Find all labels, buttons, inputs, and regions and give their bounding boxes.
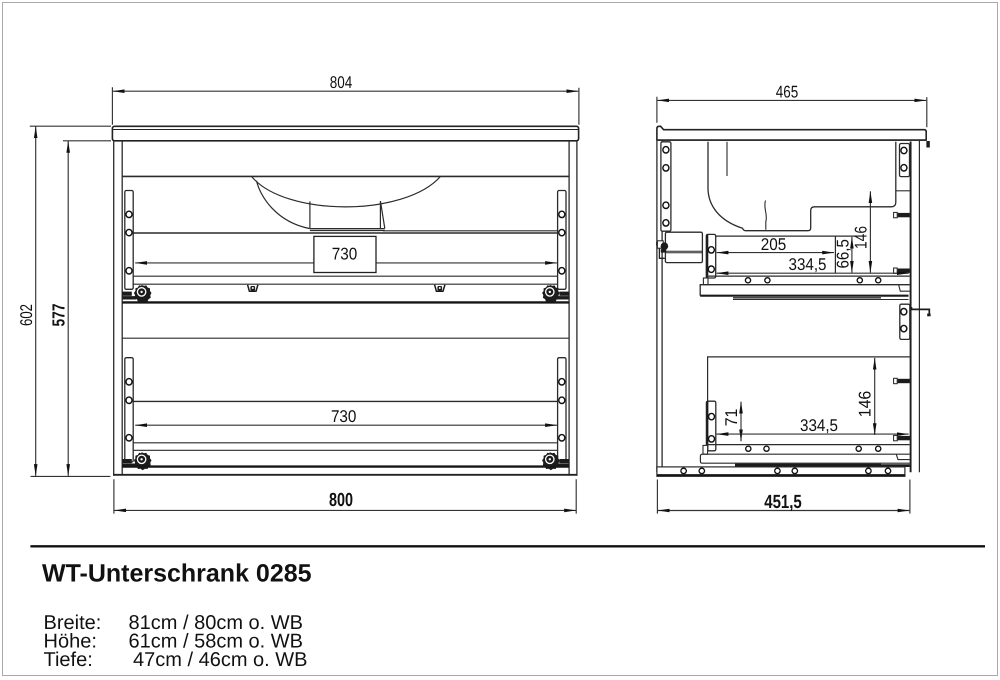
svg-text:146: 146 [851,226,870,249]
svg-text:146: 146 [856,391,875,418]
svg-text:577: 577 [49,304,69,327]
svg-text:451,5: 451,5 [764,492,802,513]
svg-text:804: 804 [330,73,353,92]
svg-text:465: 465 [776,83,799,102]
svg-text:334,5: 334,5 [789,255,827,274]
svg-text:730: 730 [331,407,357,426]
svg-text:730: 730 [332,245,358,264]
svg-text:71: 71 [722,409,741,427]
svg-text:602: 602 [17,304,36,326]
svg-text:WT-Unterschrank 0285: WT-Unterschrank 0285 [42,560,312,588]
svg-text:Tiefe:: Tiefe: [44,649,93,671]
svg-text:334,5: 334,5 [800,416,838,435]
svg-text:800: 800 [329,490,353,511]
svg-text:47cm / 46cm o. WB: 47cm / 46cm o. WB [133,649,308,671]
svg-text:205: 205 [761,235,787,254]
svg-text:66,5: 66,5 [833,239,852,268]
